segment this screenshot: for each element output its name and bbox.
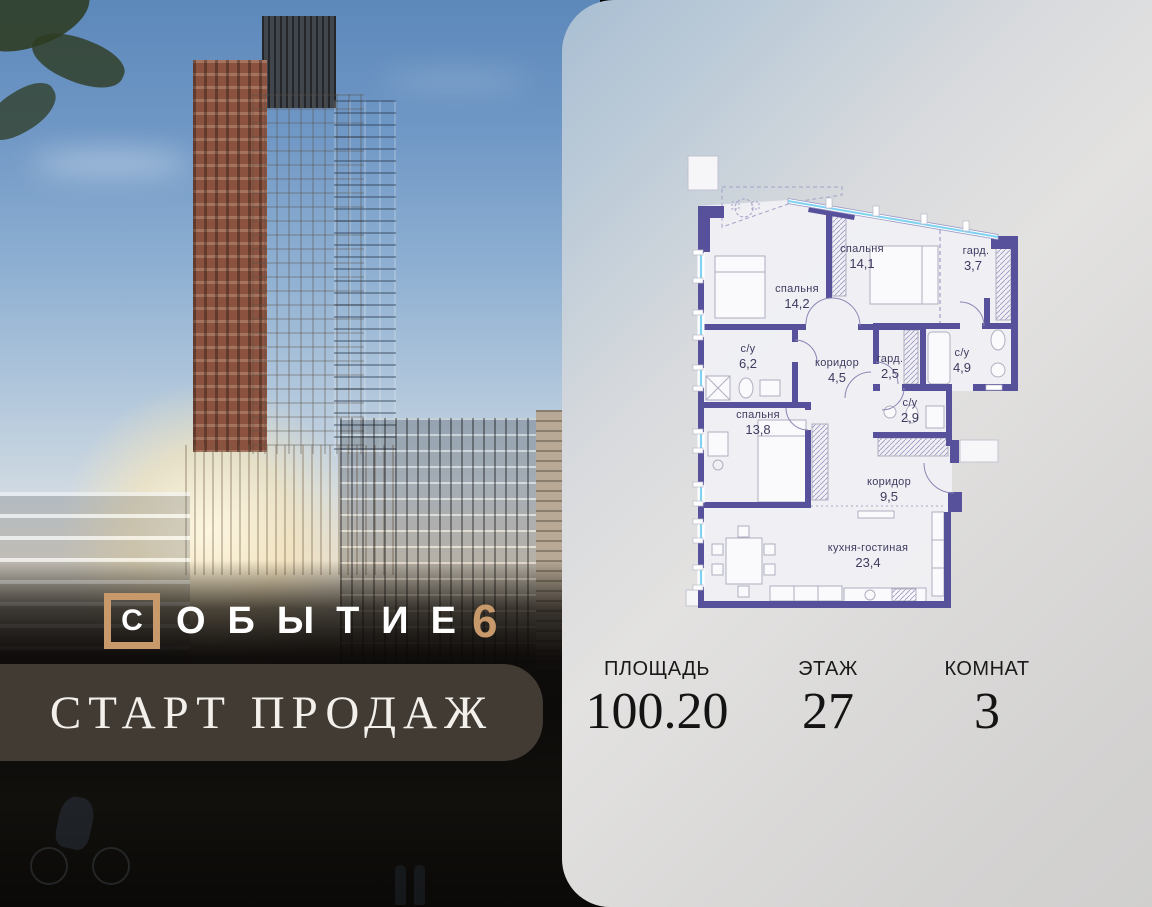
room-area: 3,7 [964,258,982,273]
stat-floor: ЭТАЖ 27 [798,658,858,740]
cyclist-silhouette [30,795,180,885]
stat-area: ПЛОЩАДЬ 100.20 [586,658,729,740]
floorplan: спальня 14,1 гард. 3,7 спальня 14,2 с/у … [660,140,1060,630]
stat-floor-label: ЭТАЖ [798,658,858,681]
apartment-stats: ПЛОЩАДЬ 100.20 ЭТАЖ 27 КОМНАТ 3 [562,658,1152,768]
room-label: с/у [741,343,756,355]
pedestrians-silhouette [395,865,441,905]
logo-boxed-letter: С [121,606,143,636]
room-area: 2,9 [901,410,919,425]
room-area: 4,5 [828,370,846,385]
room-label: спальня [775,283,819,295]
outside-box-bottom [686,590,700,606]
room-area: 6,2 [739,356,757,371]
tower-glass-facade [334,100,396,456]
room-area: 4,9 [953,360,971,375]
room-area: 14,1 [849,256,874,271]
stat-floor-value: 27 [798,685,858,740]
stat-rooms-label: КОМНАТ [944,658,1029,681]
room-label: спальня [736,409,780,421]
logo-square-icon: С [104,593,160,649]
cloud [380,70,530,90]
room-label: с/у [903,397,918,409]
stat-rooms: КОМНАТ 3 [944,658,1029,740]
outside-box-top [688,156,718,190]
stat-rooms-value: 3 [944,685,1029,740]
brand-logo: С ОБЫТИЕ 6 [104,593,498,649]
room-label: коридор [867,476,911,488]
stat-area-value: 100.20 [586,685,729,740]
apartment-card: спальня 14,1 гард. 3,7 спальня 14,2 с/у … [562,0,1152,907]
room-area: 2,5 [881,366,899,381]
building-photo: С ОБЫТИЕ 6 СТАРТ ПРОДАЖ [0,0,600,907]
room-area: 9,5 [880,489,898,504]
banner-text: СТАРТ ПРОДАЖ [50,686,493,740]
entrance-vestibule [960,440,998,462]
room-label: коридор [815,357,859,369]
logo-text: ОБЫТИЕ [176,593,478,649]
sales-start-banner: СТАРТ ПРОДАЖ [0,664,543,761]
room-label: с/у [955,347,970,359]
room-label: гард. [877,353,904,365]
room-area: 13,8 [745,422,770,437]
stat-area-label: ПЛОЩАДЬ [586,658,729,681]
room-area: 14,2 [784,296,809,311]
room-area: 23,4 [855,555,880,570]
logo-number: 6 [472,595,498,647]
room-label: спальня [840,243,884,255]
room-label: кухня-гостиная [828,542,909,554]
cloud [30,150,190,176]
room-label: гард. [963,245,990,257]
